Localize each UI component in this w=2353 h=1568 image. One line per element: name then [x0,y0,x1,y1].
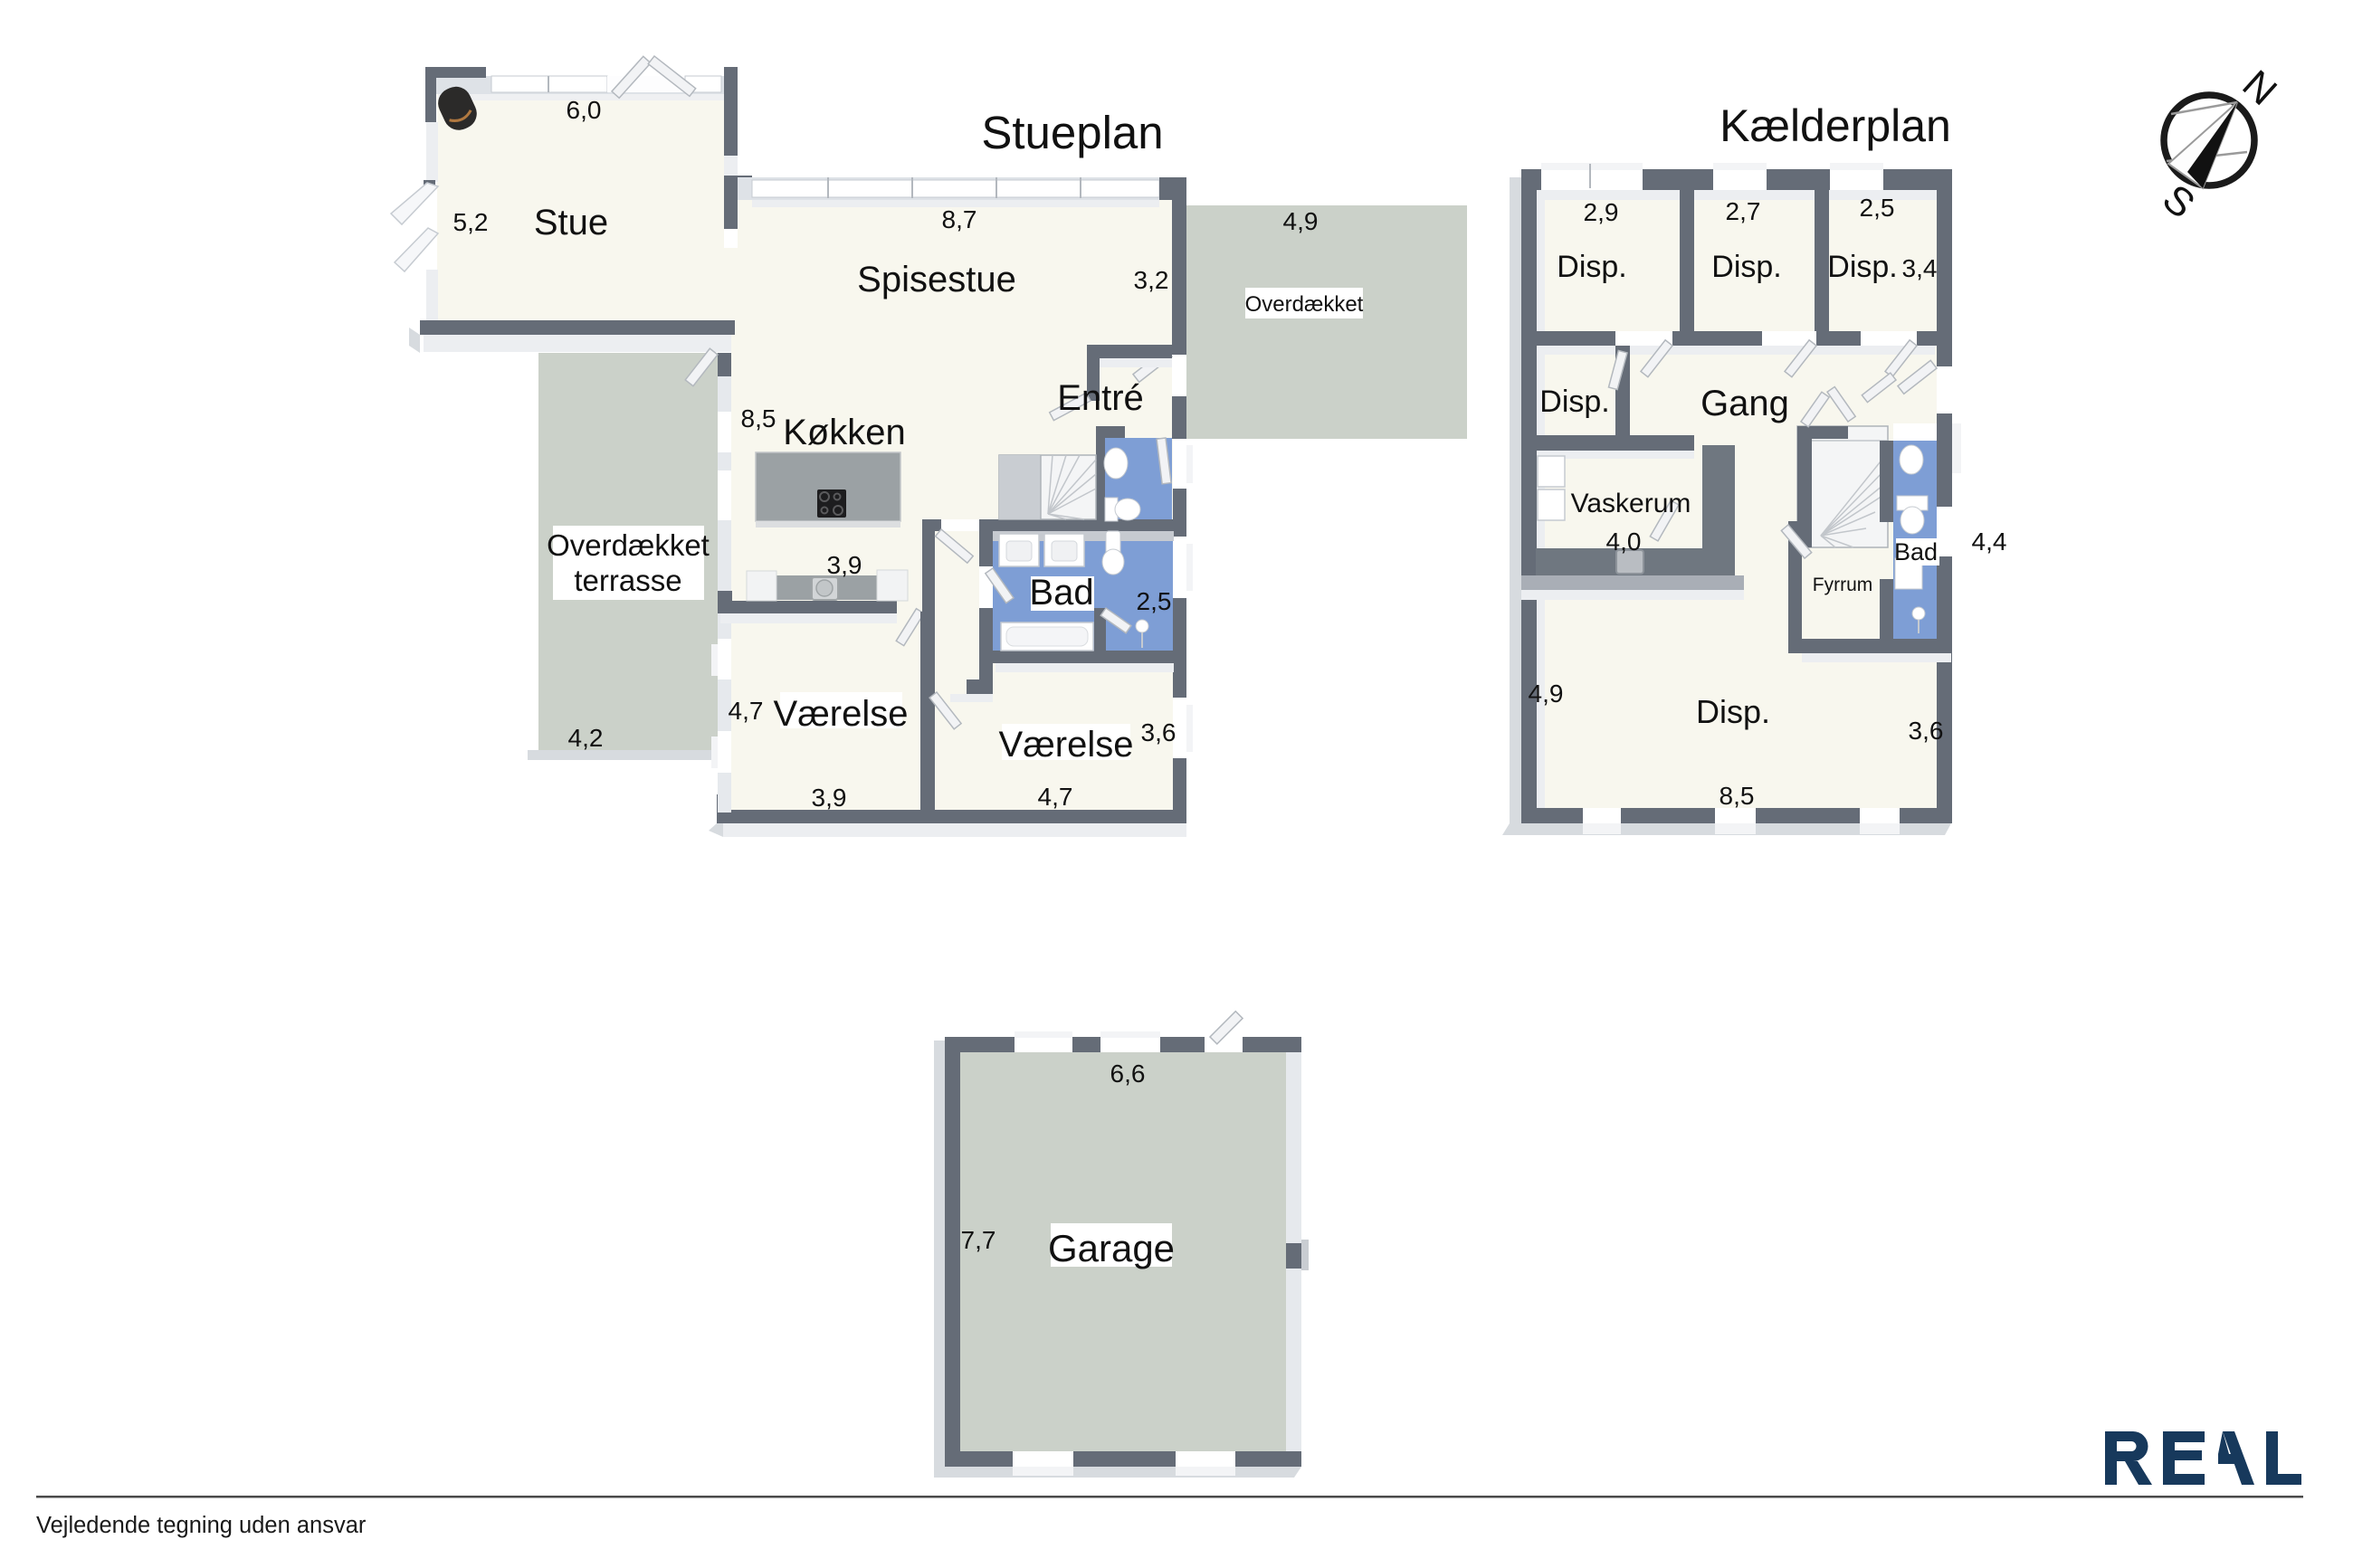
svg-text:2,7: 2,7 [1726,197,1761,225]
svg-text:Værelse: Værelse [774,694,909,734]
svg-text:Køkken: Køkken [783,413,906,452]
svg-text:Stue: Stue [534,203,608,242]
svg-text:Disp.: Disp. [1827,250,1897,284]
svg-text:3,4: 3,4 [1902,254,1938,282]
svg-text:Entré: Entré [1057,378,1144,418]
svg-text:4,7: 4,7 [1038,783,1073,811]
svg-text:Fyrrum: Fyrrum [1813,575,1873,595]
svg-text:2,9: 2,9 [1584,198,1619,226]
svg-text:Værelse: Værelse [999,725,1134,765]
svg-text:8,7: 8,7 [942,205,977,233]
svg-text:3,9: 3,9 [812,784,847,812]
svg-text:4,9: 4,9 [1529,679,1564,708]
svg-text:Bad: Bad [1029,573,1093,613]
svg-text:4,2: 4,2 [568,724,604,752]
svg-text:Gang: Gang [1700,384,1789,423]
svg-text:4,7: 4,7 [729,697,764,725]
svg-text:Vejledende tegning uden ansvar: Vejledende tegning uden ansvar [36,1513,367,1538]
svg-text:3,6: 3,6 [1141,718,1176,746]
svg-text:Disp.: Disp. [1539,385,1609,419]
svg-text:5,2: 5,2 [453,208,489,236]
svg-text:6,6: 6,6 [1110,1060,1146,1088]
svg-text:3,6: 3,6 [1909,717,1944,745]
svg-text:Bad: Bad [1894,538,1938,565]
svg-text:4,9: 4,9 [1283,207,1319,235]
svg-text:2,5: 2,5 [1860,194,1895,222]
svg-text:Vaskerum: Vaskerum [1571,489,1691,518]
svg-text:Overdækket: Overdækket [547,528,710,562]
svg-text:8,5: 8,5 [741,404,776,432]
svg-text:8,5: 8,5 [1719,782,1755,810]
svg-text:6,0: 6,0 [567,96,602,124]
svg-text:4,4: 4,4 [1972,527,2007,556]
svg-text:Garage: Garage [1048,1227,1175,1269]
svg-text:Disp.: Disp. [1696,693,1770,730]
svg-text:4,0: 4,0 [1606,527,1642,556]
svg-text:2,5: 2,5 [1137,587,1172,615]
svg-text:3,2: 3,2 [1134,266,1169,294]
svg-text:Disp.: Disp. [1711,250,1781,284]
svg-text:3,9: 3,9 [827,551,862,579]
svg-text:Spisestue: Spisestue [857,260,1016,299]
svg-text:terrasse: terrasse [574,564,681,597]
svg-text:Kælderplan: Kælderplan [1719,100,1951,151]
svg-text:Disp.: Disp. [1557,250,1626,284]
svg-text:Stueplan: Stueplan [981,107,1163,158]
svg-text:7,7: 7,7 [961,1226,996,1254]
svg-text:Overdækket: Overdækket [1245,292,1364,317]
